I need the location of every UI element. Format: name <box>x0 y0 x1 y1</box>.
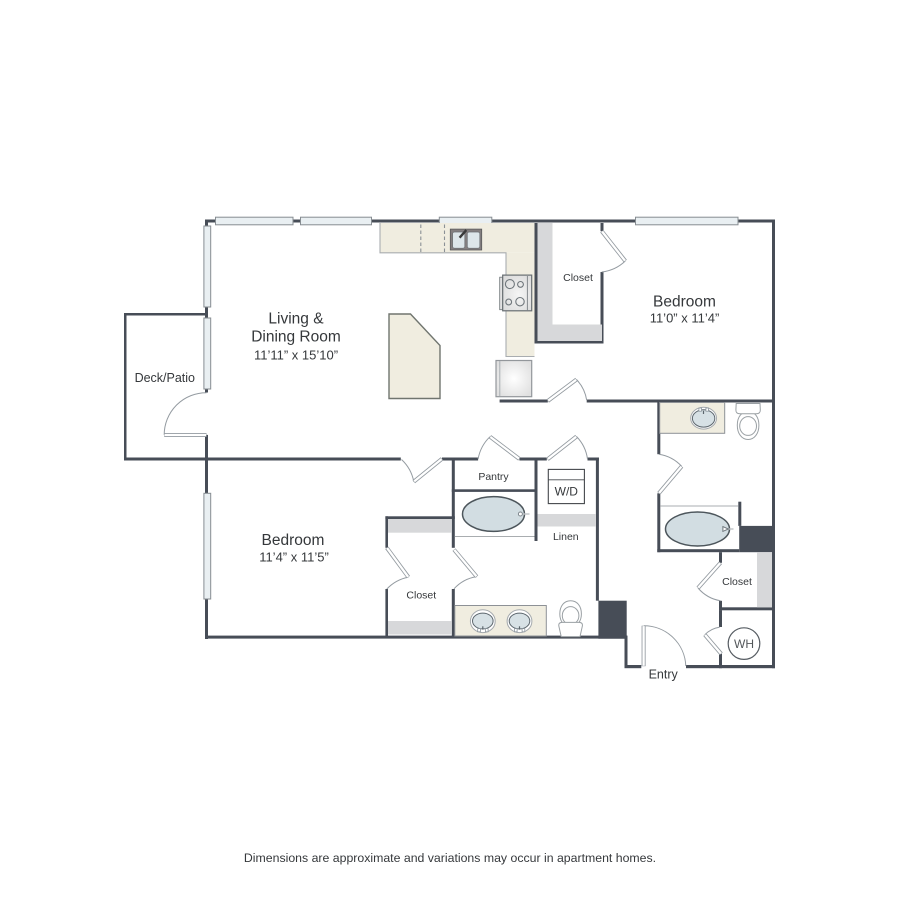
svg-text:Dimensions are approximate and: Dimensions are approximate and variation… <box>244 851 656 865</box>
svg-text:Bedroom: Bedroom <box>653 293 716 310</box>
svg-text:11’4” x 11’5”: 11’4” x 11’5” <box>259 550 329 565</box>
svg-text:Linen: Linen <box>553 531 579 543</box>
svg-text:Dining Room: Dining Room <box>251 329 341 346</box>
svg-text:Pantry: Pantry <box>478 471 509 483</box>
svg-text:Bedroom: Bedroom <box>262 532 325 549</box>
svg-text:11’11” x 15’10”: 11’11” x 15’10” <box>254 348 338 363</box>
svg-text:11’0” x 11’4”: 11’0” x 11’4” <box>650 311 720 326</box>
svg-text:Closet: Closet <box>722 576 752 588</box>
svg-text:Closet: Closet <box>406 590 436 602</box>
svg-text:Entry: Entry <box>649 668 679 682</box>
svg-text:Closet: Closet <box>563 272 593 284</box>
svg-text:Deck/Patio: Deck/Patio <box>135 371 195 385</box>
svg-text:WH: WH <box>734 637 754 651</box>
svg-text:Living &: Living & <box>268 311 324 328</box>
svg-text:W/D: W/D <box>555 485 579 499</box>
